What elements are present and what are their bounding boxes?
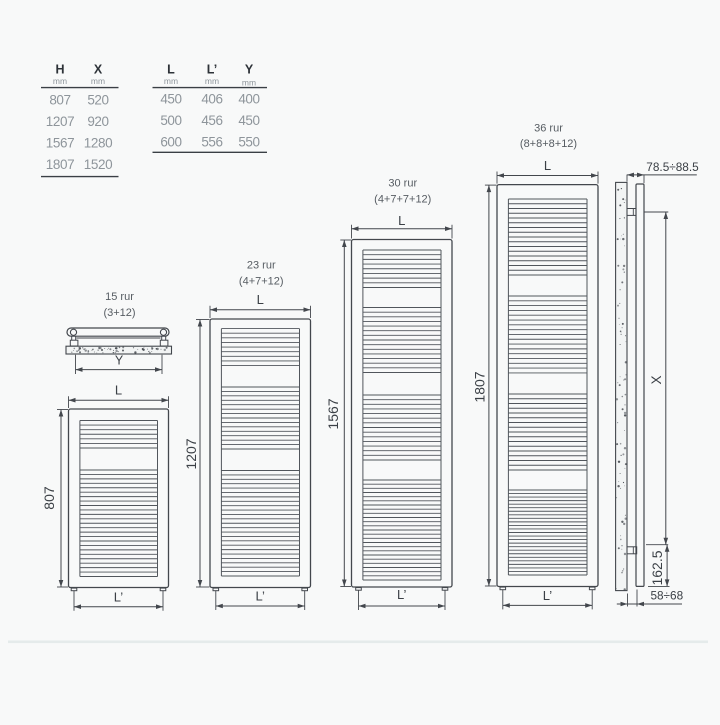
svg-text:36 rur: 36 rur xyxy=(534,122,563,134)
svg-text:1807: 1807 xyxy=(46,157,74,172)
svg-text:920: 920 xyxy=(87,114,108,129)
svg-text:(4+7+12): (4+7+12) xyxy=(239,275,284,287)
svg-text:500: 500 xyxy=(160,113,181,128)
svg-text:L’: L’ xyxy=(207,63,217,77)
svg-text:X: X xyxy=(649,375,664,384)
svg-text:162.5: 162.5 xyxy=(649,550,665,585)
svg-text:520: 520 xyxy=(87,92,108,107)
svg-text:600: 600 xyxy=(160,134,181,149)
svg-text:L: L xyxy=(115,382,122,397)
svg-text:556: 556 xyxy=(201,134,222,149)
svg-text:450: 450 xyxy=(160,91,181,106)
svg-text:(4+7+7+12): (4+7+7+12) xyxy=(374,194,431,206)
svg-text:15 rur: 15 rur xyxy=(105,291,134,303)
svg-text:807: 807 xyxy=(49,92,70,107)
svg-text:mm: mm xyxy=(164,76,178,86)
svg-text:450: 450 xyxy=(238,113,259,128)
svg-text:78.5÷88.5: 78.5÷88.5 xyxy=(646,160,699,174)
svg-text:1567: 1567 xyxy=(46,135,74,150)
svg-text:L: L xyxy=(544,158,551,173)
svg-text:Y: Y xyxy=(245,63,254,77)
svg-text:807: 807 xyxy=(41,486,57,510)
svg-text:23 rur: 23 rur xyxy=(247,260,276,272)
svg-text:30 rur: 30 rur xyxy=(388,177,417,189)
svg-text:L: L xyxy=(257,292,264,307)
svg-text:L: L xyxy=(167,63,175,77)
svg-text:400: 400 xyxy=(238,91,259,106)
svg-text:(3+12): (3+12) xyxy=(103,307,135,319)
svg-text:mm: mm xyxy=(242,78,256,88)
svg-text:L’: L’ xyxy=(256,589,266,604)
svg-text:550: 550 xyxy=(238,134,259,149)
svg-text:1567: 1567 xyxy=(325,398,341,429)
svg-text:1520: 1520 xyxy=(84,157,112,172)
svg-text:X: X xyxy=(94,63,103,77)
svg-text:L’: L’ xyxy=(397,587,407,602)
svg-text:Y: Y xyxy=(115,354,124,368)
svg-text:1807: 1807 xyxy=(472,371,488,402)
svg-text:L: L xyxy=(398,213,405,228)
svg-text:(8+8+8+12): (8+8+8+12) xyxy=(520,138,577,150)
svg-text:H: H xyxy=(55,63,64,77)
svg-text:mm: mm xyxy=(53,76,67,86)
svg-text:mm: mm xyxy=(91,76,105,86)
svg-text:456: 456 xyxy=(201,113,222,128)
svg-text:1280: 1280 xyxy=(84,135,112,150)
svg-text:L’: L’ xyxy=(543,588,553,603)
svg-text:1207: 1207 xyxy=(46,114,74,129)
svg-text:mm: mm xyxy=(205,76,219,86)
svg-text:L’: L’ xyxy=(114,589,124,604)
svg-text:1207: 1207 xyxy=(183,438,199,469)
svg-text:58÷68: 58÷68 xyxy=(650,589,683,603)
svg-text:406: 406 xyxy=(201,91,222,106)
